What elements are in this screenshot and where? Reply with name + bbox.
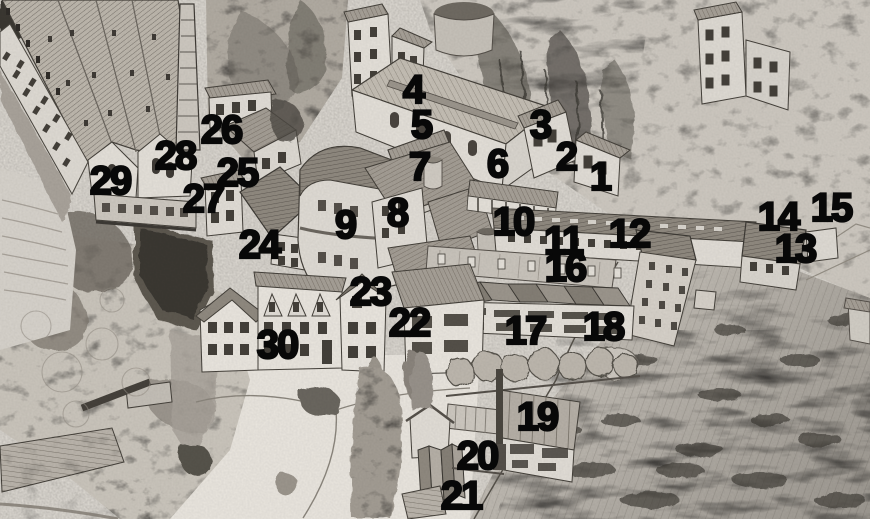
svg-text:3: 3 bbox=[530, 103, 551, 147]
svg-text:19: 19 bbox=[517, 395, 558, 439]
svg-text:7: 7 bbox=[409, 145, 430, 189]
svg-text:26: 26 bbox=[201, 108, 242, 152]
svg-text:22: 22 bbox=[389, 301, 430, 345]
svg-text:9: 9 bbox=[335, 203, 356, 247]
svg-text:6: 6 bbox=[487, 142, 508, 186]
svg-text:21: 21 bbox=[441, 474, 483, 518]
svg-text:29: 29 bbox=[90, 159, 131, 203]
svg-text:14: 14 bbox=[758, 195, 801, 239]
svg-text:28: 28 bbox=[155, 134, 197, 178]
svg-text:8: 8 bbox=[387, 191, 409, 235]
svg-text:16: 16 bbox=[545, 246, 586, 290]
svg-text:30: 30 bbox=[257, 323, 298, 367]
svg-text:20: 20 bbox=[457, 434, 498, 478]
svg-text:17: 17 bbox=[505, 309, 546, 353]
svg-text:1: 1 bbox=[590, 155, 612, 199]
svg-text:2: 2 bbox=[556, 135, 577, 179]
svg-text:10: 10 bbox=[493, 200, 534, 244]
svg-text:12: 12 bbox=[609, 212, 650, 256]
svg-text:5: 5 bbox=[411, 103, 433, 147]
svg-text:23: 23 bbox=[350, 270, 391, 314]
svg-text:18: 18 bbox=[583, 305, 625, 349]
svg-text:15: 15 bbox=[811, 186, 853, 230]
svg-text:27: 27 bbox=[183, 177, 224, 221]
svg-text:24: 24 bbox=[239, 223, 282, 267]
